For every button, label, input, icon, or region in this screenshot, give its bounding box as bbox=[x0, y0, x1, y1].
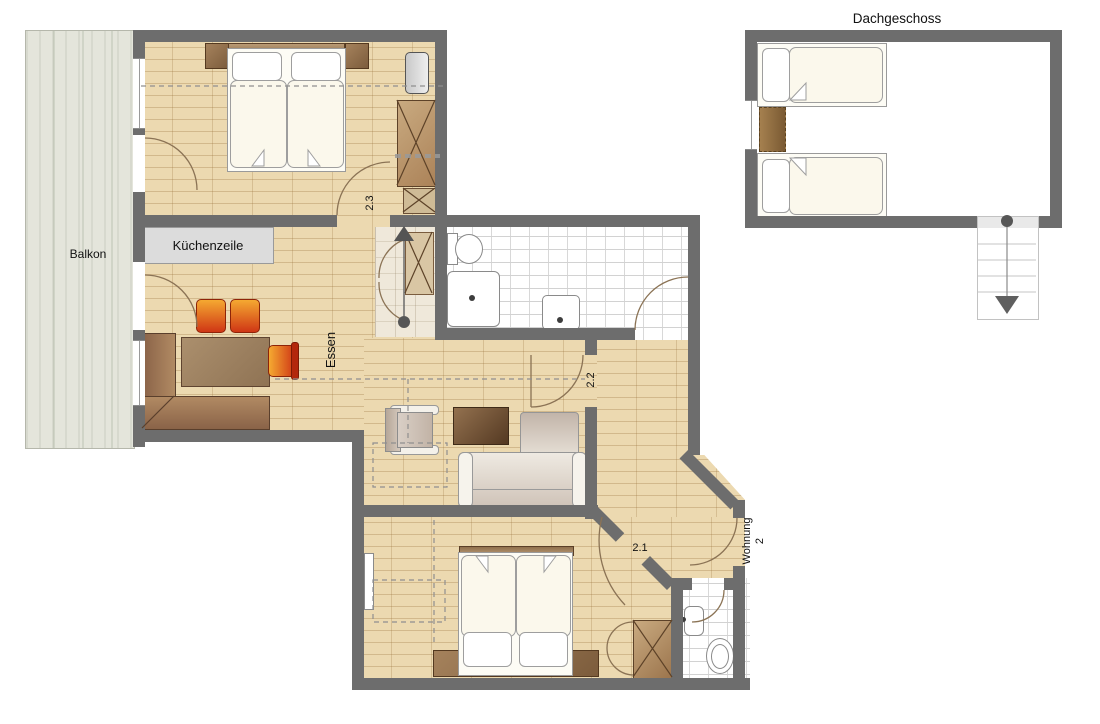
window-kitchen bbox=[133, 340, 145, 406]
kitchen-unit: Küchenzeile bbox=[142, 227, 274, 264]
stool bbox=[230, 299, 260, 333]
floorplan-canvas: Küchenzeile bbox=[0, 0, 1100, 724]
wall-bedroom23-right bbox=[435, 30, 447, 340]
sink-faucet bbox=[557, 317, 563, 323]
room-number-21: 2.1 bbox=[618, 542, 662, 554]
wardrobe-23 bbox=[397, 100, 437, 187]
pillow bbox=[519, 632, 568, 667]
corner-bench bbox=[142, 396, 270, 430]
wall-bathroom-top bbox=[447, 215, 700, 227]
duvet bbox=[287, 80, 344, 168]
wall-bathroom-right bbox=[688, 215, 700, 455]
pillow bbox=[291, 52, 341, 81]
apartment-name: Wohnung bbox=[741, 518, 753, 565]
stool bbox=[196, 299, 226, 333]
room-number-23: 2.3 bbox=[364, 192, 376, 214]
wall-wc-left bbox=[671, 578, 683, 690]
attic-window bbox=[745, 100, 757, 150]
wardrobe-21 bbox=[633, 620, 674, 679]
toilet bbox=[455, 234, 483, 264]
dining-table bbox=[181, 337, 270, 387]
attic-staircase-down bbox=[977, 216, 1039, 320]
wall-bottom bbox=[352, 678, 750, 690]
wall-hall-stub bbox=[585, 338, 597, 355]
shower-drain bbox=[469, 295, 475, 301]
pillow bbox=[762, 159, 790, 213]
dining-label: Essen bbox=[323, 330, 339, 370]
apartment-label: Wohnung 2 bbox=[741, 513, 769, 569]
kitchen-unit-label: Küchenzeile bbox=[173, 238, 244, 253]
wall-bedroom21-top bbox=[364, 505, 598, 517]
balcony-floor bbox=[25, 30, 135, 449]
duvet bbox=[789, 47, 883, 103]
nightstand bbox=[205, 43, 229, 69]
nightstand bbox=[345, 43, 369, 69]
pillow bbox=[762, 48, 790, 102]
wall-wc-top bbox=[671, 578, 692, 590]
balcony-door-kitchen-opening bbox=[133, 262, 145, 330]
duvet bbox=[789, 157, 883, 215]
wc-sink bbox=[684, 606, 704, 636]
attic-title: Dachgeschoss bbox=[797, 11, 997, 26]
chair-backrest bbox=[291, 342, 299, 380]
hallway-floor bbox=[597, 338, 700, 457]
wall-bedroom23-bottom bbox=[133, 215, 337, 227]
radiator bbox=[405, 52, 429, 94]
wall-hall-living bbox=[585, 407, 597, 519]
wall-bedroom23-bottom bbox=[390, 215, 447, 227]
attic-wall-top bbox=[745, 30, 1062, 42]
room-number-22: 2.2 bbox=[585, 369, 597, 391]
staircase-up-box bbox=[405, 232, 434, 295]
wall-bathroom-bottom bbox=[435, 328, 635, 340]
wall-dining-bottom bbox=[133, 430, 364, 442]
sofa-seat bbox=[458, 452, 587, 508]
attic-wall-right bbox=[1050, 30, 1062, 228]
armchair-seat bbox=[397, 412, 433, 448]
duvet bbox=[461, 555, 516, 637]
window-bedroom23 bbox=[133, 58, 145, 129]
sink bbox=[542, 295, 580, 330]
balcony-door-bedroom-opening bbox=[133, 135, 145, 192]
duvet bbox=[230, 80, 287, 168]
wc-toilet-seat bbox=[711, 644, 729, 669]
attic-dresser bbox=[759, 107, 786, 152]
wall-wc-top bbox=[724, 578, 735, 590]
shelf-under-stairs bbox=[403, 188, 437, 214]
wall-bedroom21-left bbox=[352, 430, 364, 690]
wall-top bbox=[133, 30, 447, 42]
apartment-number: 2 bbox=[754, 538, 766, 544]
pillow bbox=[232, 52, 282, 81]
sofa-armrest bbox=[458, 452, 473, 508]
radiator bbox=[364, 553, 374, 610]
coffee-table bbox=[453, 407, 509, 445]
balcony-label: Balkon bbox=[48, 247, 128, 261]
duvet bbox=[516, 555, 571, 637]
pillow bbox=[463, 632, 512, 667]
sofa-cushion-line bbox=[472, 489, 572, 490]
